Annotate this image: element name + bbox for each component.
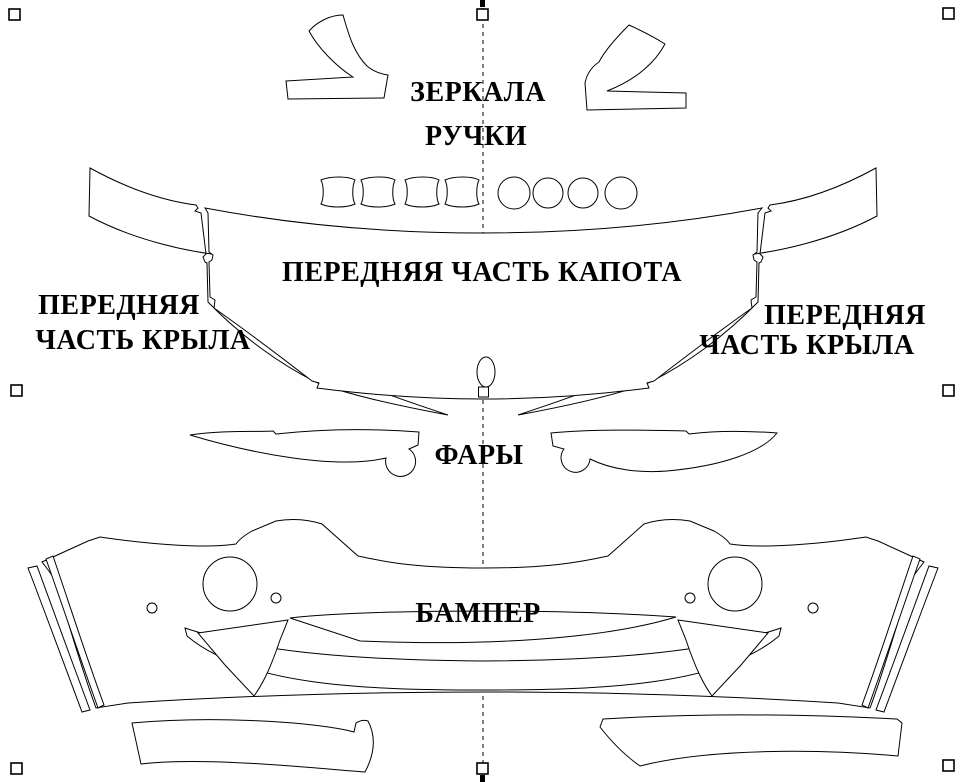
round-handle-piece[interactable] xyxy=(498,177,530,209)
round-handle-piece[interactable] xyxy=(533,178,563,208)
door-handle-piece[interactable] xyxy=(361,177,395,207)
selection-handle-top-right[interactable] xyxy=(943,8,954,19)
selection-handle-middle-left[interactable] xyxy=(11,385,22,396)
guide-anchor-bottom[interactable] xyxy=(480,775,485,782)
pattern-drawing xyxy=(0,0,964,782)
washer-hole-left[interactable] xyxy=(203,557,257,611)
left-fender-label-line1: ПЕРЕДНЯЯ xyxy=(38,292,200,320)
ppf-pattern-canvas: ЗЕРКАЛА РУЧКИ ПЕРЕДНЯЯ ЧАСТЬ КАПОТА ПЕРЕ… xyxy=(0,0,964,782)
selection-handle-top-center[interactable] xyxy=(477,9,488,20)
washer-hole-right[interactable] xyxy=(708,557,762,611)
left-mirror-piece[interactable] xyxy=(286,15,388,99)
sensor-hole[interactable] xyxy=(685,593,695,603)
guide-anchor-top[interactable] xyxy=(480,0,485,7)
rocker-strip-left[interactable] xyxy=(132,720,373,772)
selection-handle-middle-right[interactable] xyxy=(943,385,954,396)
handles-label: РУЧКИ xyxy=(425,123,527,151)
sensor-hole[interactable] xyxy=(271,593,281,603)
left-headlight-piece[interactable] xyxy=(190,430,419,477)
hood-label: ПЕРЕДНЯЯ ЧАСТЬ КАПОТА xyxy=(282,259,682,287)
round-handle-piece[interactable] xyxy=(605,177,637,209)
right-fender-label-line1: ПЕРЕДНЯЯ xyxy=(764,302,926,330)
hood-piece[interactable] xyxy=(205,208,762,399)
selection-handle-bottom-left[interactable] xyxy=(11,763,22,774)
right-headlight-piece[interactable] xyxy=(551,430,777,472)
bumper-label: БАМПЕР xyxy=(415,600,540,628)
sensor-hole[interactable] xyxy=(147,603,157,613)
right-mirror-piece[interactable] xyxy=(585,25,686,110)
left-fender-label-line2: ЧАСТЬ КРЫЛА xyxy=(35,327,250,355)
rocker-strip-right[interactable] xyxy=(600,715,902,766)
right-fender-label-line2: ЧАСТЬ КРЫЛА xyxy=(699,332,914,360)
mirrors-label: ЗЕРКАЛА xyxy=(410,79,546,107)
headlights-label: ФАРЫ xyxy=(434,442,523,470)
round-handle-piece[interactable] xyxy=(568,178,598,208)
selection-handle-bottom-center[interactable] xyxy=(477,763,488,774)
door-handle-piece[interactable] xyxy=(445,177,479,207)
selection-handle-top-left[interactable] xyxy=(9,9,20,20)
door-handle-piece[interactable] xyxy=(405,177,439,207)
door-handle-piece[interactable] xyxy=(321,177,355,207)
sensor-hole[interactable] xyxy=(808,603,818,613)
selection-handle-bottom-right[interactable] xyxy=(943,760,954,771)
